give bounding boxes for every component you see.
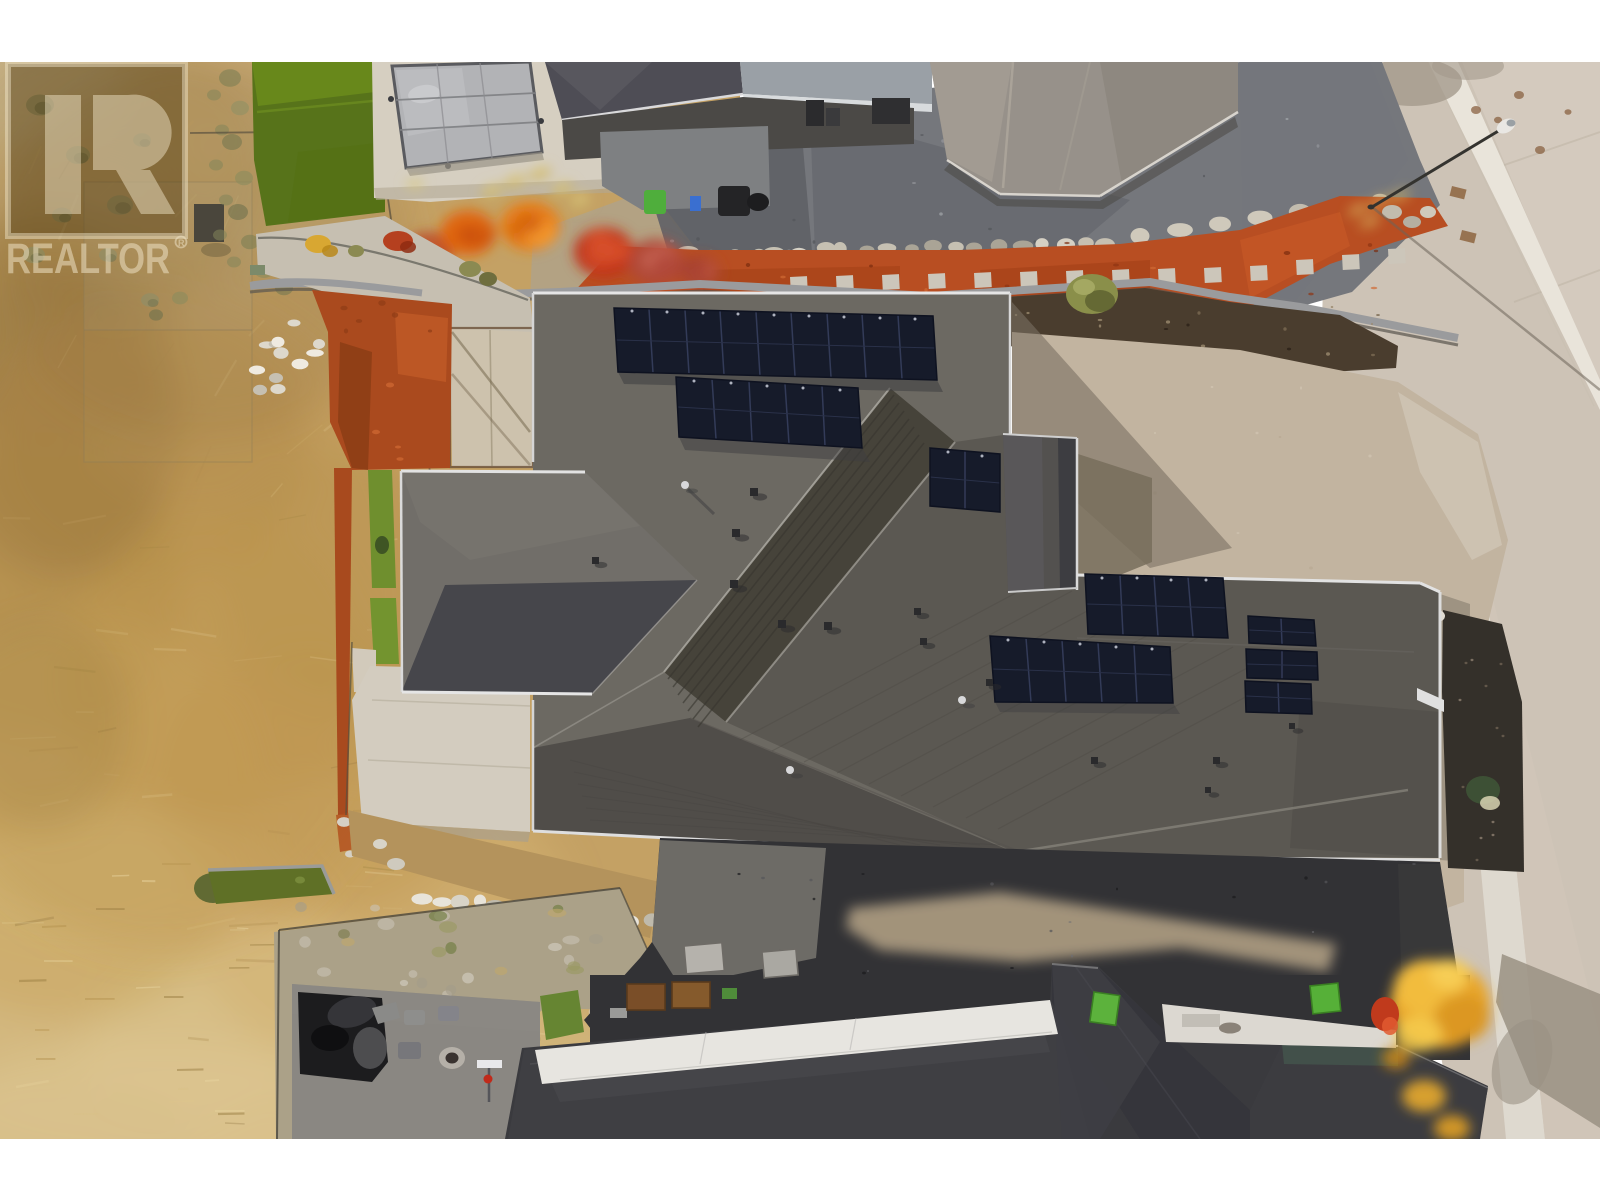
- svg-text:REALTOR: REALTOR: [6, 235, 170, 283]
- svg-text:R: R: [178, 238, 185, 248]
